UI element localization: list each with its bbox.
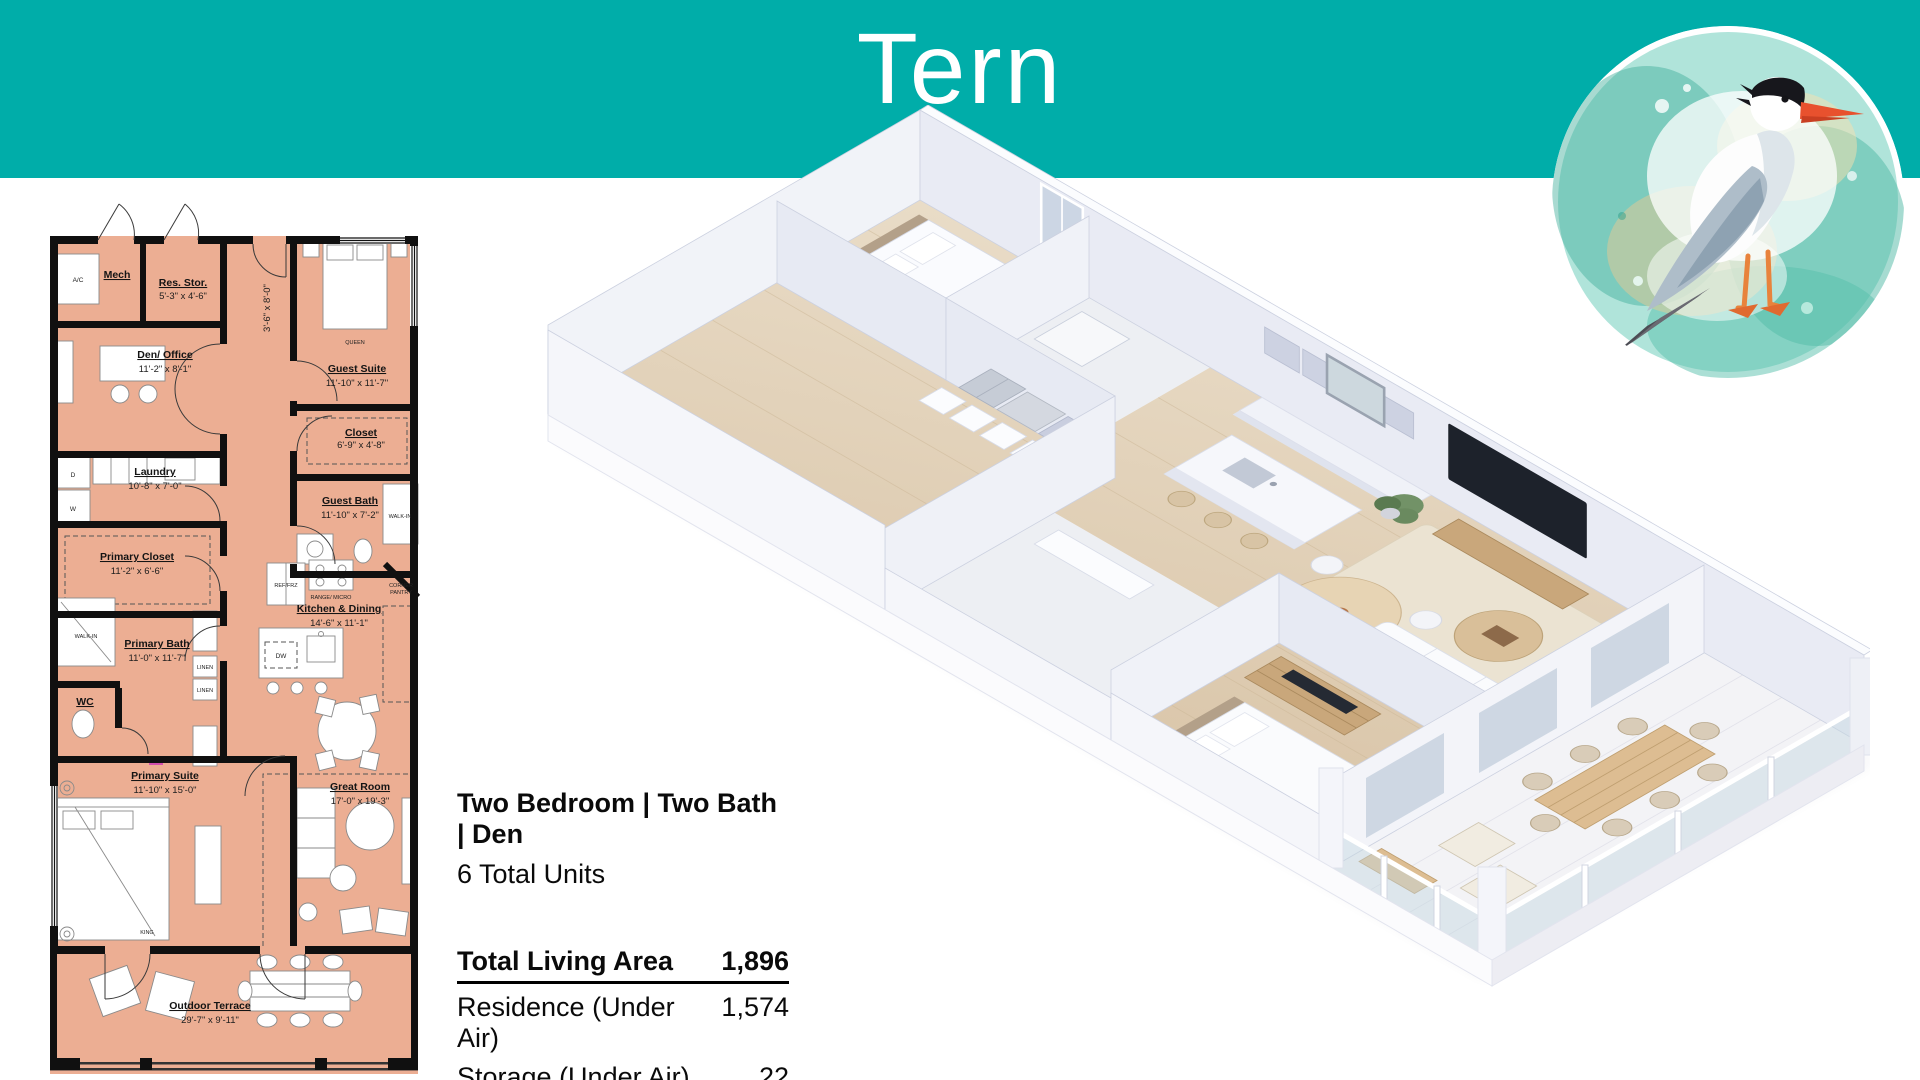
floor-plan-2d: A/C Mech Res. Stor. 5'-3" x 4'-6" 3'-6" … — [45, 196, 423, 1080]
brochure-page: Tern — [0, 0, 1920, 1080]
fixture-label-linen2: LINEN — [197, 688, 213, 694]
room-label-wc: WC — [76, 696, 94, 708]
area-row-storage: Storage (Under Air) 22 — [457, 1062, 789, 1080]
room-label-primary-closet: Primary Closet — [100, 551, 175, 563]
room-label-kitchen: Kitchen & Dining — [297, 603, 382, 615]
room-dims-closet: 6'-9" x 4'-8" — [337, 440, 385, 451]
room-dims-primary-closet: 11'-2" x 6'-6" — [111, 566, 163, 577]
room-dims-terrace: 29'-7" x 9'-11" — [181, 1015, 239, 1026]
room-label-great-room: Great Room — [330, 781, 390, 793]
fixture-label-pantry-2: PANTRY — [390, 590, 412, 596]
room-label-closet: Closet — [345, 427, 378, 439]
room-dims-great-room: 17'-0" x 19'-3" — [331, 796, 389, 807]
room-label-terrace: Outdoor Terrace — [169, 1000, 251, 1012]
room-dims-den-office: 11'-2" x 8'-1" — [139, 364, 191, 375]
room-dims-guest-suite: 11'-10" x 11'-7" — [326, 378, 388, 389]
fixture-label-pantry-1: CORNER — [389, 583, 413, 589]
room-label-primary-bath: Primary Bath — [124, 638, 189, 650]
fixture-label-dryer: D — [71, 472, 76, 479]
fixture-label-king: KING — [140, 930, 153, 936]
fixture-label-ref: REF/FRZ — [274, 583, 298, 589]
fixture-label-walkin-guest: WALK-IN — [389, 514, 412, 520]
fixture-label-dw: DW — [276, 653, 288, 660]
fixture-label-linen1: LINEN — [197, 665, 213, 671]
room-label-res-stor: Res. Stor. — [159, 277, 208, 289]
room-label-mech: Mech — [104, 269, 131, 281]
room-label-primary-suite: Primary Suite — [131, 770, 199, 782]
room-dims-kitchen: 14'-6" x 11'-1" — [310, 618, 368, 629]
room-label-den-office: Den/ Office — [137, 349, 193, 361]
area-row-label: Storage (Under Air) — [457, 1062, 690, 1080]
floor-plan-3d-render — [520, 105, 1870, 1005]
room-dims-primary-suite: 11'-10" x 15'-0" — [133, 785, 196, 796]
room-dims-primary-bath: 11'-0" x 11'-7" — [128, 653, 185, 664]
fixture-label-ac: A/C — [73, 277, 84, 284]
room-label-laundry: Laundry — [134, 466, 176, 478]
room-label-guest-bath: Guest Bath — [322, 495, 378, 507]
entry-door-dim: 3'-6" x 8'-0" — [262, 284, 273, 332]
fixture-label-walkin-primary: WALK-IN — [75, 634, 98, 640]
area-row-value: 22 — [759, 1062, 789, 1080]
room-dims-guest-bath: 11'-10" x 7'-2" — [321, 510, 379, 521]
room-dims-res-stor: 5'-3" x 4'-6" — [159, 291, 207, 302]
fixture-label-range: RANGE/ MICRO — [311, 595, 353, 601]
fixture-label-queen: QUEEN — [345, 340, 365, 346]
fixture-label-washer: W — [70, 506, 77, 513]
room-dims-laundry: 10'-8" x 7'-0" — [128, 481, 181, 492]
room-label-guest-suite: Guest Suite — [328, 363, 387, 375]
